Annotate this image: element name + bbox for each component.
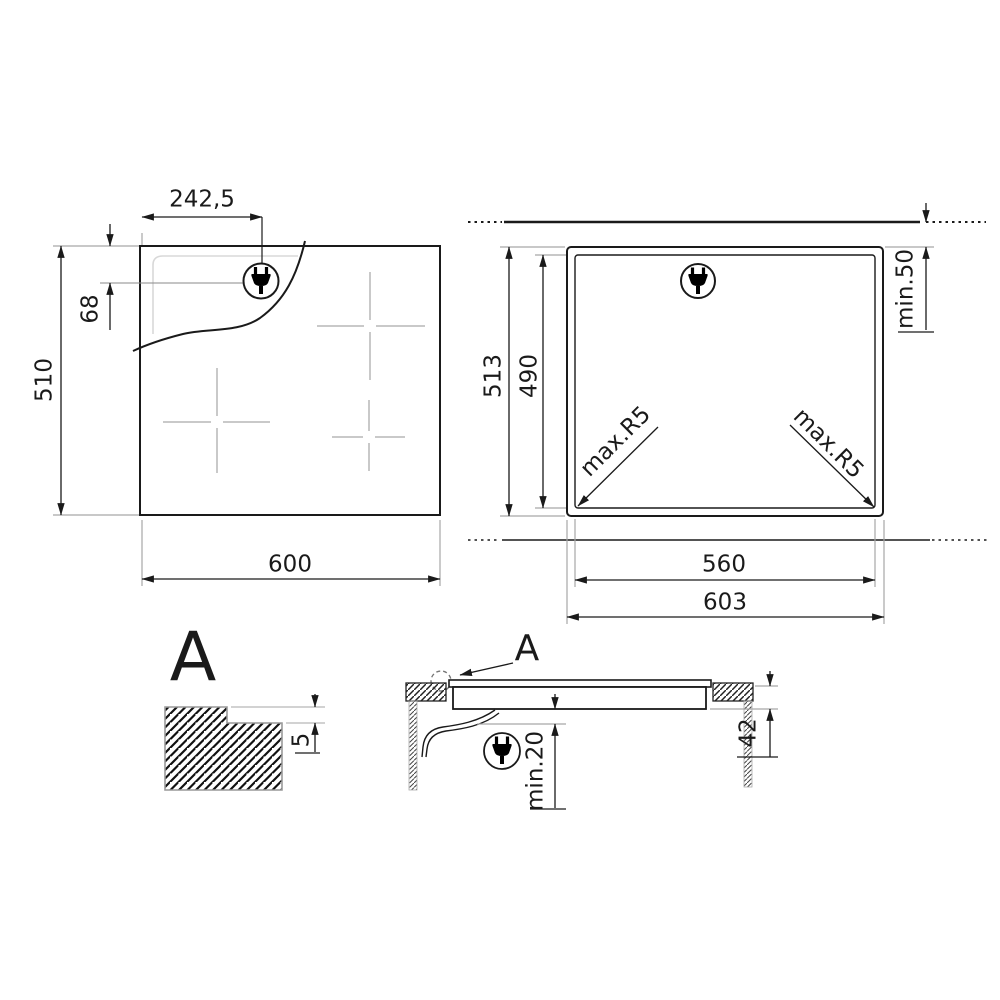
dim-label-profile-height: 5 (291, 733, 314, 748)
dim-label-plug-y: 68 (80, 294, 103, 323)
hob-outline-top (567, 247, 883, 516)
dim-label-cutout-total-height: 513 (483, 354, 506, 398)
dim-label-plan-height: 510 (34, 358, 57, 402)
dim-label-cutout-height: 490 (519, 354, 542, 398)
detail-a-title: A (170, 624, 217, 692)
power-plug-icon (484, 733, 520, 769)
installation-diagram-page: 242,5 68 510 600 513 490 min.50 max.R5 m… (0, 0, 1000, 1000)
dim-label-clearance-below: min.20 (525, 731, 548, 811)
plan-view (53, 217, 440, 586)
detail-a-leader (460, 663, 513, 675)
cabinet-panel-left (409, 701, 417, 790)
dim-label-plan-width: 600 (268, 554, 312, 577)
worktop-section-left (406, 683, 446, 701)
dim-label-wall-clearance: min.50 (895, 249, 918, 329)
section-a-label: A (515, 631, 540, 667)
dim-label-body-depth: 42 (738, 718, 761, 747)
worktop-section-right (713, 683, 753, 701)
section-view (406, 663, 778, 809)
power-plug-icon (681, 264, 715, 298)
power-plug-icon (244, 264, 279, 299)
hob-body-section (453, 687, 706, 709)
dim-label-total-width: 603 (703, 592, 747, 615)
hob-glass-section (449, 680, 711, 687)
technical-drawing (0, 0, 1000, 1000)
dim-label-plug-x: 242,5 (169, 189, 235, 212)
dim-label-cutout-width: 560 (702, 554, 746, 577)
hob-outline (140, 246, 440, 515)
profile-section-shape (165, 707, 282, 790)
